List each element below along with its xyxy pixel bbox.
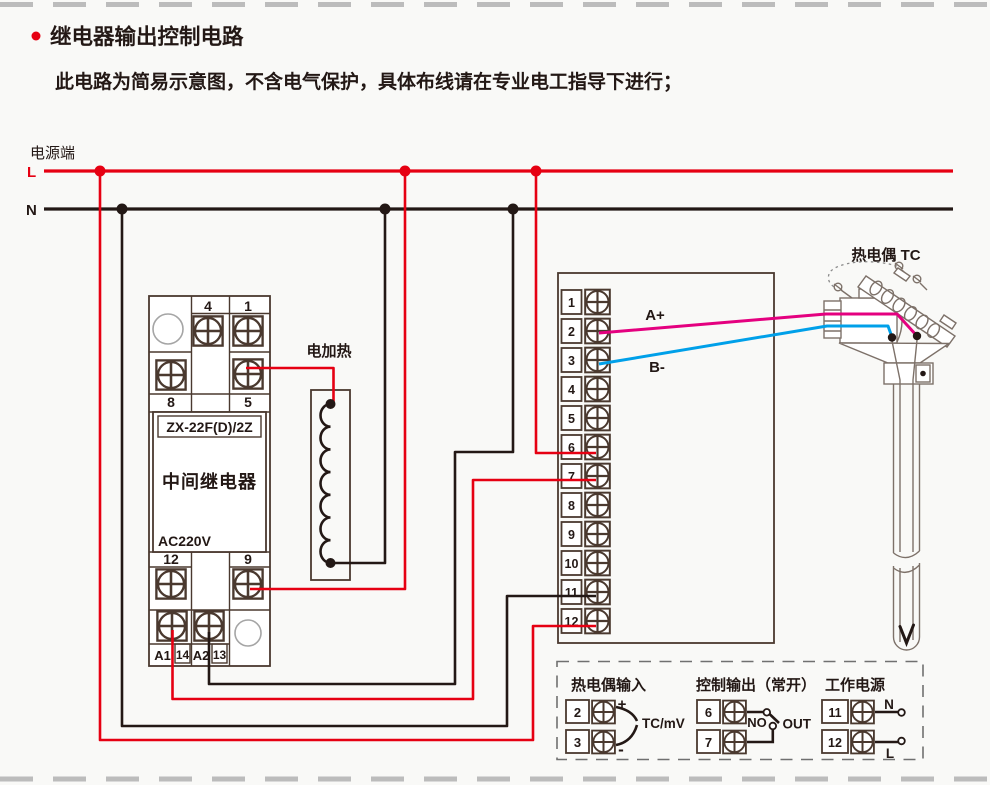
out-label: OUT: [783, 717, 812, 732]
screw-icon: [585, 464, 610, 489]
screw-icon: [233, 316, 262, 345]
terminal-number: 8: [568, 499, 575, 513]
relay-terminal-a1-label: A1: [154, 648, 171, 663]
cable-gland-nut: [824, 301, 841, 338]
heater-label: 电加热: [306, 342, 351, 360]
terminal-number: 11: [565, 586, 578, 600]
switch-contact-icon: [770, 723, 777, 730]
terminal-number: 3: [574, 735, 581, 750]
screw-icon: [723, 731, 746, 754]
legend-control-output-title: 控制输出（常开）: [696, 676, 816, 694]
terminal-number: 12: [828, 736, 842, 750]
page-subtitle: 此电路为简易示意图，不含电气保护，具体布线请在专业电工指导下进行；: [55, 70, 682, 93]
screw-icon: [156, 569, 185, 598]
wire-end-circle-icon: [898, 709, 905, 716]
junction-dot: [380, 204, 391, 215]
terminal-number: 10: [565, 557, 579, 571]
screw-icon: [585, 609, 610, 634]
screw-icon: [851, 731, 874, 754]
relay-voltage: AC220V: [158, 533, 212, 549]
terminal-number: 3: [568, 354, 575, 368]
relay-unit: 4 1 8 5 ZX-22F(D)/2Z 中间继电器 AC220V 12 9 A…: [149, 296, 270, 666]
relay-name: 中间继电器: [162, 471, 257, 492]
screw-icon: [585, 522, 610, 547]
tc-terminal-dot: [888, 333, 896, 341]
relay-terminal-a2-label: A2: [193, 648, 210, 663]
collar-clamp-dot: [920, 371, 926, 377]
junction-dot: [117, 204, 128, 215]
legend-tc-input-title: 热电偶输入: [571, 676, 646, 694]
screw-icon: [585, 290, 610, 315]
screw-icon: [585, 580, 610, 605]
line-l-label: L: [27, 164, 36, 181]
line-n-label: N: [26, 202, 37, 219]
screw-icon: [585, 406, 610, 431]
legend-working-power-title: 工作电源: [825, 676, 885, 694]
terminal-number: 4: [568, 383, 575, 397]
relay-terminal-1-label: 1: [244, 298, 252, 314]
terminal-number: 2: [574, 705, 581, 720]
terminal-number: 1: [568, 296, 575, 310]
power-side-label: 电源端: [30, 145, 75, 162]
relay-terminal-9-label: 9: [244, 551, 252, 567]
junction-dot: [95, 166, 106, 177]
terminal-number: 5: [568, 412, 575, 426]
junction-dot: [508, 204, 519, 215]
screw-icon: [851, 701, 874, 724]
page-title: 继电器输出控制电路: [50, 24, 244, 49]
junction-dot: [400, 166, 411, 177]
tc-terminal-dot: [913, 332, 921, 340]
screw-icon: [585, 493, 610, 518]
relay-terminal-4-label: 4: [204, 298, 212, 314]
screw-icon: [723, 701, 746, 724]
screw-icon: [585, 551, 610, 576]
relay-wiring-diagram: 继电器输出控制电路 此电路为简易示意图，不含电气保护，具体布线请在专业电工指导下…: [0, 0, 990, 785]
wire-end-circle-icon: [898, 738, 905, 745]
terminal-number: 11: [828, 706, 841, 720]
tc-unit-label: TC/mV: [642, 716, 685, 731]
screw-icon: [156, 360, 185, 389]
screw-icon: [585, 348, 610, 373]
relay-terminal-12-label: 12: [163, 551, 179, 567]
terminal-number: 6: [705, 705, 712, 720]
thermocouple-label: 热电偶 TC: [851, 246, 920, 264]
relay-model: ZX-22F(D)/2Z: [166, 419, 253, 435]
heater-terminal-dot: [326, 558, 336, 568]
terminal-number: 7: [568, 470, 575, 484]
terminal-number: 2: [568, 325, 575, 339]
bullet-icon: [32, 32, 41, 41]
terminal-number: 9: [568, 528, 575, 542]
screw-icon: [592, 701, 615, 724]
power-n-label: N: [884, 697, 894, 712]
legend-box: 热电偶输入 2 3 + - TC/mV 控制输出（常开） 6 7 NO OUT …: [557, 662, 923, 762]
relay-terminal-5-label: 5: [244, 394, 252, 410]
screw-icon: [592, 731, 615, 754]
no-label: NO: [747, 715, 767, 730]
screw-icon: [193, 316, 222, 345]
relay-terminal-8-label: 8: [167, 394, 175, 410]
screw-icon: [233, 569, 262, 598]
junction-dot: [531, 166, 542, 177]
heater-terminal-dot: [326, 399, 336, 409]
wire-b-minus-label: B-: [649, 359, 665, 376]
screw-icon: [585, 377, 610, 402]
power-l-label: L: [886, 746, 894, 761]
relay-terminal-14-label: 14: [176, 648, 190, 662]
terminal-number: 7: [705, 735, 712, 750]
relay-terminal-13-label: 13: [213, 648, 227, 662]
screw-icon: [585, 435, 610, 460]
screw-icon: [233, 359, 262, 388]
wire-a-plus-label: A+: [645, 307, 665, 324]
